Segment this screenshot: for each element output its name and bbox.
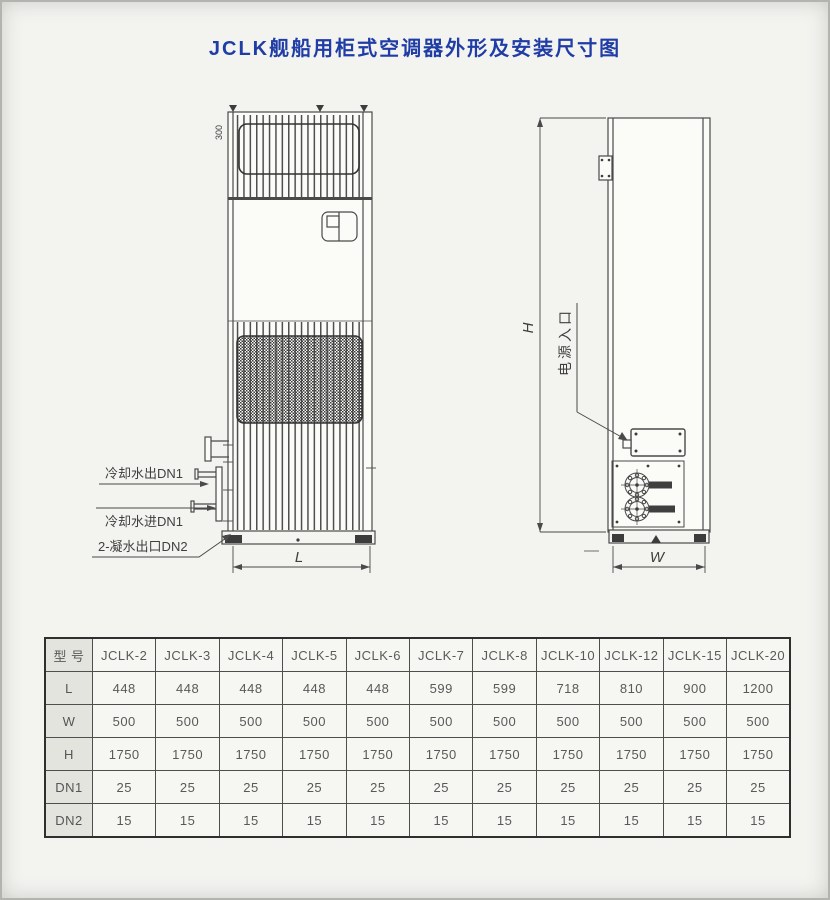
table-cell: 810: [600, 672, 663, 705]
table-cell: 448: [156, 672, 219, 705]
table-cell: 25: [473, 771, 536, 804]
table-cell: 500: [473, 705, 536, 738]
table-cell: 1750: [663, 738, 726, 771]
spec-table-head: 型 号JCLK-2JCLK-3JCLK-4JCLK-5JCLK-6JCLK-7J…: [45, 638, 790, 672]
row-header-DN2: DN2: [45, 804, 93, 838]
callout-condensate: 2-凝水出口DN2: [98, 539, 188, 554]
table-cell: 500: [727, 705, 790, 738]
table-cell: 25: [600, 771, 663, 804]
dim-label-H: H: [520, 322, 537, 333]
table-cell: 15: [663, 804, 726, 838]
dimension-table-wrap: 型 号JCLK-2JCLK-3JCLK-4JCLK-5JCLK-6JCLK-7J…: [44, 637, 791, 838]
side-base: [584, 530, 709, 551]
top-marker-icon: [316, 105, 324, 112]
dim-label-L: L: [295, 549, 303, 566]
table-cell: 25: [156, 771, 219, 804]
table-cell: 25: [663, 771, 726, 804]
table-cell: 1750: [346, 738, 409, 771]
col-header-JCLK-6: JCLK-6: [346, 638, 409, 672]
dim-label-W: W: [650, 549, 666, 566]
table-cell: 500: [536, 705, 599, 738]
table-cell: 25: [410, 771, 473, 804]
top-air-grille: [235, 115, 363, 198]
table-cell: 500: [156, 705, 219, 738]
row-header-DN1: DN1: [45, 771, 93, 804]
table-cell: 1200: [727, 672, 790, 705]
spec-table-body: L4484484484484485995997188109001200W5005…: [45, 672, 790, 838]
table-cell: 500: [600, 705, 663, 738]
table-cell: 1750: [600, 738, 663, 771]
table-cell: 1750: [410, 738, 473, 771]
top-marker-icon: [229, 105, 237, 112]
table-cell: 900: [663, 672, 726, 705]
table-cell: 500: [410, 705, 473, 738]
row-header-H: H: [45, 738, 93, 771]
scanned-spec-page: JCLK舰船用柜式空调器外形及安装尺寸图: [0, 0, 830, 900]
table-cell: 15: [473, 804, 536, 838]
col-header-JCLK-12: JCLK-12: [600, 638, 663, 672]
front-base: [222, 531, 375, 544]
table-cell: 718: [536, 672, 599, 705]
row-header-L: L: [45, 672, 93, 705]
table-cell: 15: [600, 804, 663, 838]
table-cell: 1750: [283, 738, 346, 771]
callout-water-in: 冷却水进DN1: [105, 514, 183, 529]
model-header-cell: 型 号: [45, 638, 93, 672]
col-header-JCLK-7: JCLK-7: [410, 638, 473, 672]
table-row-DN1: DN12525252525252525252525: [45, 771, 790, 804]
table-cell: 15: [410, 804, 473, 838]
top-left-note: 300: [214, 125, 224, 140]
table-cell: 599: [410, 672, 473, 705]
table-row-W: W500500500500500500500500500500500: [45, 705, 790, 738]
side-cabinet-body: [608, 118, 710, 532]
table-cell: 25: [536, 771, 599, 804]
table-cell: 500: [93, 705, 156, 738]
table-cell: 1750: [156, 738, 219, 771]
table-cell: 15: [536, 804, 599, 838]
table-cell: 15: [93, 804, 156, 838]
table-cell: 15: [283, 804, 346, 838]
table-cell: 15: [156, 804, 219, 838]
callout-water-out: 冷却水出DN1: [105, 466, 183, 481]
table-cell: 25: [727, 771, 790, 804]
table-cell: 1750: [93, 738, 156, 771]
table-cell: 25: [346, 771, 409, 804]
table-cell: 599: [473, 672, 536, 705]
control-panel: [322, 212, 357, 241]
col-header-JCLK-3: JCLK-3: [156, 638, 219, 672]
table-cell: 500: [283, 705, 346, 738]
top-marker-icon: [360, 105, 368, 112]
table-cell: 500: [346, 705, 409, 738]
table-row-L: L4484484484484485995997188109001200: [45, 672, 790, 705]
cooling-water-inlet-pipe: [191, 467, 222, 521]
table-cell: 15: [219, 804, 282, 838]
side-view: H 电源入口: [520, 118, 710, 573]
mounting-bracket: [599, 156, 612, 180]
power-inlet-label: 电源入口: [557, 308, 573, 376]
table-cell: 25: [93, 771, 156, 804]
col-header-JCLK-20: JCLK-20: [727, 638, 790, 672]
mesh-intake-grille: [237, 336, 362, 423]
table-cell: 448: [346, 672, 409, 705]
cooling-water-outlet-pipe: [205, 437, 229, 461]
table-cell: 15: [346, 804, 409, 838]
technical-drawing: 300: [0, 0, 830, 620]
col-header-JCLK-15: JCLK-15: [663, 638, 726, 672]
table-cell: 1750: [536, 738, 599, 771]
col-header-JCLK-2: JCLK-2: [93, 638, 156, 672]
table-row-H: H175017501750175017501750175017501750175…: [45, 738, 790, 771]
col-header-JCLK-8: JCLK-8: [473, 638, 536, 672]
spec-table: 型 号JCLK-2JCLK-3JCLK-4JCLK-5JCLK-6JCLK-7J…: [44, 637, 791, 838]
col-header-JCLK-5: JCLK-5: [283, 638, 346, 672]
table-cell: 448: [93, 672, 156, 705]
table-cell: 25: [219, 771, 282, 804]
junction-box: [623, 429, 685, 456]
table-cell: 25: [283, 771, 346, 804]
table-row-DN2: DN21515151515151515151515: [45, 804, 790, 838]
table-cell: 500: [219, 705, 282, 738]
table-cell: 500: [663, 705, 726, 738]
col-header-JCLK-10: JCLK-10: [536, 638, 599, 672]
table-cell: 1750: [727, 738, 790, 771]
table-cell: 448: [283, 672, 346, 705]
table-cell: 1750: [219, 738, 282, 771]
table-cell: 15: [727, 804, 790, 838]
table-cell: 1750: [473, 738, 536, 771]
col-header-JCLK-4: JCLK-4: [219, 638, 282, 672]
table-cell: 448: [219, 672, 282, 705]
front-view: 300: [92, 105, 376, 573]
row-header-W: W: [45, 705, 93, 738]
